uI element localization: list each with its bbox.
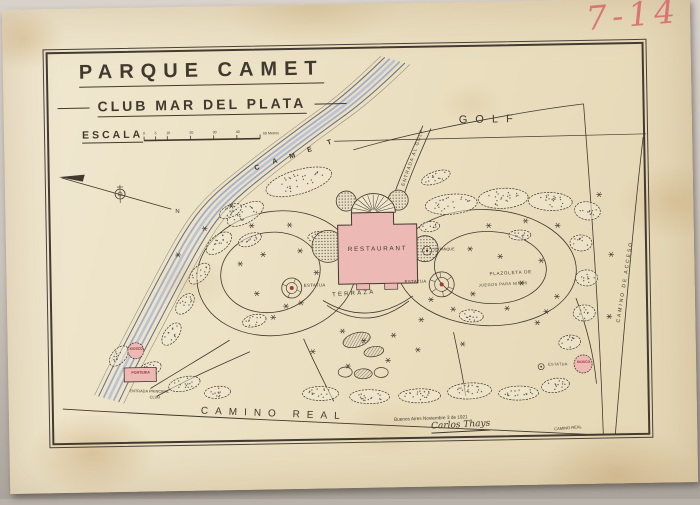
svg-text:40: 40 xyxy=(236,130,240,134)
svg-text:N: N xyxy=(175,209,179,215)
kiosk-right-label: KIOSCO xyxy=(572,361,595,365)
scale-bar: 051020304050 Metros xyxy=(143,129,279,140)
statue-bottom-right-label: ESTATUA xyxy=(548,362,568,367)
svg-text:10: 10 xyxy=(166,131,170,135)
subtitle-dash-left xyxy=(58,108,90,110)
gatehouse-label: PORTERIA xyxy=(124,371,157,376)
svg-text:50 Metros: 50 Metros xyxy=(263,131,279,135)
restaurant-label: RESTAURANT xyxy=(338,246,417,254)
plan-subtitle: CLUB MAR DEL PLATA xyxy=(97,95,306,118)
scale-label: ESCALA xyxy=(82,130,143,144)
statue-left-label: ESTATUA xyxy=(304,283,326,288)
kiosk-left-label: KIOSCO xyxy=(123,348,150,352)
plan-canvas: N 051020304050 Metros PARQUE CAMET CLUB … xyxy=(0,0,700,505)
subtitle-dash-right xyxy=(314,103,346,105)
main-entrance-label-line1: ENTRADA PRINCIPAL xyxy=(129,389,169,394)
river-name-letter: E xyxy=(306,146,312,154)
svg-text:0: 0 xyxy=(143,132,145,136)
svg-text:5: 5 xyxy=(155,131,157,135)
plan-title: PARQUE CAMET xyxy=(79,57,324,87)
pond-label: ESTANQUE xyxy=(434,247,455,252)
main-entrance-label-line2: CLUB xyxy=(150,395,160,399)
statue-right-label: ESTATUA xyxy=(405,280,427,285)
plan-sheet: N 051020304050 Metros PARQUE CAMET CLUB … xyxy=(2,0,698,494)
svg-text:30: 30 xyxy=(213,130,217,134)
svg-text:20: 20 xyxy=(189,131,193,135)
golf-area-label: GOLF xyxy=(459,113,521,126)
compass-rose: N xyxy=(59,173,180,217)
